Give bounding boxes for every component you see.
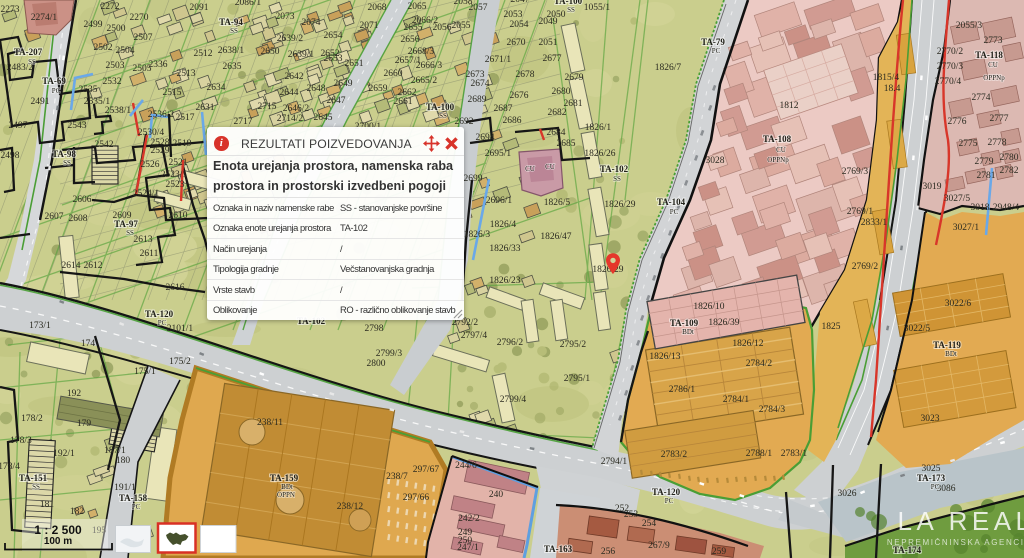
svg-text:2774: 2774: [972, 93, 991, 103]
svg-text:TA-173: TA-173: [917, 473, 946, 483]
svg-text:259: 259: [712, 547, 727, 557]
svg-text:1826/12: 1826/12: [732, 339, 763, 349]
svg-text:297/66: 297/66: [403, 493, 430, 503]
svg-text:2783/2: 2783/2: [661, 450, 688, 460]
svg-text:TA-108: TA-108: [763, 134, 792, 144]
svg-text:TA-120: TA-120: [145, 309, 174, 319]
svg-text:2778: 2778: [988, 138, 1007, 148]
svg-text:TA-97: TA-97: [114, 219, 138, 229]
svg-text:2274/1: 2274/1: [31, 13, 58, 23]
svg-text:2073: 2073: [276, 12, 295, 22]
svg-text:BDt: BDt: [281, 483, 293, 491]
svg-text:2613: 2613: [134, 235, 153, 245]
svg-text:242/2: 242/2: [458, 514, 480, 524]
svg-text:2612: 2612: [84, 261, 103, 271]
svg-text:2507: 2507: [134, 33, 153, 43]
svg-text:2047: 2047: [511, 0, 530, 5]
svg-text:3027/1: 3027/1: [953, 223, 980, 233]
svg-text:SS: SS: [63, 159, 71, 167]
svg-text:1826/13: 1826/13: [649, 352, 680, 362]
svg-text:2517: 2517: [176, 113, 195, 123]
svg-text:CU: CU: [545, 163, 555, 171]
svg-text:2687: 2687: [494, 104, 513, 114]
svg-text:2674: 2674: [471, 79, 490, 89]
svg-text:2634: 2634: [207, 83, 226, 93]
svg-text:1826/26: 1826/26: [584, 149, 615, 159]
svg-text:2677: 2677: [543, 54, 562, 64]
svg-text:254: 254: [642, 519, 657, 529]
svg-text:2684: 2684: [547, 128, 566, 138]
svg-text:SS: SS: [28, 58, 36, 66]
svg-text:267/9: 267/9: [648, 541, 670, 551]
svg-text:2770/4: 2770/4: [935, 77, 962, 87]
svg-text:175/1: 175/1: [134, 367, 156, 377]
svg-text:2666/3: 2666/3: [416, 61, 443, 71]
svg-text:2647: 2647: [327, 96, 346, 106]
svg-text:2651: 2651: [345, 59, 364, 69]
svg-text:2642: 2642: [285, 72, 304, 82]
svg-text:2679: 2679: [565, 73, 584, 83]
svg-text:3023: 3023: [921, 414, 940, 424]
svg-text:TA-120: TA-120: [652, 487, 681, 497]
svg-text:2524/1: 2524/1: [133, 189, 160, 199]
svg-text:2526: 2526: [141, 160, 160, 170]
svg-text:2797/4: 2797/4: [461, 331, 488, 341]
svg-text:OPPNp: OPPNp: [767, 156, 789, 164]
svg-text:SS: SS: [230, 27, 238, 35]
svg-text:2695/1: 2695/1: [485, 149, 512, 159]
svg-text:2685: 2685: [557, 139, 576, 149]
svg-text:175/2: 175/2: [169, 357, 191, 367]
svg-text:2833/1: 2833/1: [861, 218, 888, 228]
svg-text:2648: 2648: [307, 84, 326, 94]
svg-text:2680: 2680: [552, 87, 571, 97]
svg-text:2694: 2694: [476, 133, 495, 143]
svg-text:LA REAL: LA REAL: [897, 506, 1024, 536]
svg-text:178/4: 178/4: [0, 462, 20, 472]
svg-text:238/11: 238/11: [257, 418, 283, 428]
svg-text:1826/1: 1826/1: [585, 123, 612, 133]
svg-text:3086: 3086: [937, 484, 956, 494]
svg-text:2055/3: 2055/3: [956, 21, 983, 31]
svg-text:2504: 2504: [116, 46, 135, 56]
svg-text:2068: 2068: [368, 3, 387, 13]
svg-text:2611: 2611: [140, 249, 159, 259]
svg-text:192/1: 192/1: [53, 449, 75, 459]
svg-text:TA-104: TA-104: [657, 197, 686, 207]
svg-text:2491: 2491: [31, 97, 50, 107]
svg-text:2532: 2532: [103, 77, 122, 87]
svg-text:2777: 2777: [990, 114, 1009, 124]
svg-text:180: 180: [116, 456, 131, 466]
svg-text:2776: 2776: [948, 117, 967, 127]
svg-text:18.4: 18.4: [884, 84, 901, 94]
svg-text:2646/2: 2646/2: [283, 104, 310, 114]
svg-text:2682: 2682: [548, 108, 567, 118]
svg-text:2542: 2542: [95, 140, 114, 150]
svg-text:2775: 2775: [959, 139, 978, 149]
svg-text:2639/1: 2639/1: [288, 50, 315, 60]
svg-text:2644: 2644: [280, 88, 299, 98]
svg-text:SS: SS: [32, 483, 40, 491]
svg-text:TA-118: TA-118: [975, 50, 1003, 60]
svg-text:252: 252: [615, 504, 630, 514]
svg-text:2715: 2715: [258, 102, 277, 112]
svg-text:TA-158: TA-158: [119, 493, 148, 503]
svg-text:2521: 2521: [169, 158, 188, 168]
svg-text:178/3: 178/3: [10, 436, 32, 446]
svg-text:2799/3: 2799/3: [376, 349, 403, 359]
svg-text:SS: SS: [439, 112, 447, 120]
svg-text:2503: 2503: [106, 61, 125, 71]
svg-text:2051: 2051: [539, 38, 558, 48]
svg-text:191/1: 191/1: [114, 483, 136, 493]
svg-text:297/67: 297/67: [413, 465, 440, 475]
svg-text:2794/1: 2794/1: [601, 457, 628, 467]
svg-text:2784/1: 2784/1: [723, 395, 750, 405]
svg-text:240: 240: [489, 490, 504, 500]
svg-text:1826/10: 1826/10: [693, 302, 724, 312]
svg-text:2773: 2773: [984, 36, 1003, 46]
svg-text:2065: 2065: [408, 2, 427, 12]
svg-text:1826/3: 1826/3: [464, 230, 491, 240]
svg-text:2608: 2608: [69, 214, 88, 224]
svg-text:2054: 2054: [510, 20, 529, 30]
svg-text:100 m: 100 m: [44, 536, 72, 547]
svg-text:PC: PC: [158, 319, 167, 327]
svg-text:2678: 2678: [516, 70, 535, 80]
svg-text:1815/4: 1815/4: [873, 73, 900, 83]
svg-text:2053: 2053: [504, 10, 523, 20]
svg-text:3026: 3026: [838, 489, 857, 499]
svg-text:2638/1: 2638/1: [218, 46, 245, 56]
svg-text:181: 181: [40, 500, 55, 510]
svg-text:2536/2: 2536/2: [148, 110, 175, 120]
svg-text:TA-98: TA-98: [52, 149, 76, 159]
svg-text:2656: 2656: [401, 35, 420, 45]
svg-text:PC: PC: [52, 87, 61, 95]
svg-text:2769/3: 2769/3: [842, 167, 869, 177]
svg-text:2800: 2800: [367, 359, 386, 369]
svg-text:2696/1: 2696/1: [486, 196, 513, 206]
svg-text:2498: 2498: [1, 151, 20, 161]
svg-text:BDt: BDt: [682, 328, 694, 336]
svg-text:1826/5: 1826/5: [544, 198, 571, 208]
svg-text:2654: 2654: [324, 31, 343, 41]
svg-text:TA-163: TA-163: [544, 544, 573, 554]
svg-text:2665/2: 2665/2: [411, 76, 438, 86]
svg-text:2523: 2523: [166, 180, 185, 190]
svg-text:2795/2: 2795/2: [560, 340, 587, 350]
svg-text:238/12: 238/12: [337, 502, 364, 512]
svg-text:SS: SS: [567, 6, 575, 14]
svg-text:2538/1: 2538/1: [105, 106, 132, 116]
svg-text:OPPNp: OPPNp: [983, 74, 1005, 82]
svg-text:2535: 2535: [79, 85, 98, 95]
svg-text:244/6: 244/6: [455, 461, 477, 471]
svg-text:2770/3: 2770/3: [937, 62, 964, 72]
svg-text:3022/5: 3022/5: [904, 324, 931, 334]
svg-text:2796/2: 2796/2: [497, 338, 524, 348]
svg-text:2692: 2692: [455, 117, 474, 127]
svg-text:1826/33: 1826/33: [489, 244, 520, 254]
svg-text:2529: 2529: [151, 146, 170, 156]
svg-text:2783/1: 2783/1: [781, 449, 808, 459]
svg-text:192: 192: [67, 389, 82, 399]
svg-text:247/1: 247/1: [457, 543, 479, 553]
svg-text:2676: 2676: [510, 91, 529, 101]
svg-text:CU: CU: [525, 165, 535, 173]
svg-text:2671/1: 2671/1: [485, 55, 512, 65]
svg-text:BDt: BDt: [945, 350, 957, 358]
svg-text:2513: 2513: [177, 69, 196, 79]
svg-text:2086/1: 2086/1: [235, 0, 262, 8]
svg-text:TA-102: TA-102: [600, 164, 629, 174]
svg-text:2055: 2055: [452, 21, 471, 31]
svg-text:2689: 2689: [468, 95, 487, 105]
svg-text:1826/23: 1826/23: [489, 276, 520, 286]
svg-text:TA-79: TA-79: [701, 37, 725, 47]
svg-text:TA-100: TA-100: [426, 102, 455, 112]
svg-text:2655: 2655: [404, 23, 423, 33]
svg-text:2670: 2670: [507, 38, 526, 48]
svg-text:SS: SS: [126, 229, 134, 237]
svg-text:TA-151: TA-151: [19, 473, 48, 483]
svg-text:1812: 1812: [780, 101, 799, 111]
svg-text:PC: PC: [665, 497, 674, 505]
svg-text:SS: SS: [613, 175, 621, 183]
svg-text:OPPN: OPPN: [277, 491, 295, 499]
svg-text:187/1: 187/1: [104, 446, 126, 456]
svg-text:2607: 2607: [45, 212, 64, 222]
svg-text:2057: 2057: [469, 3, 488, 13]
svg-text:2101/1: 2101/1: [167, 324, 194, 334]
svg-text:2661: 2661: [394, 97, 413, 107]
svg-text:2717: 2717: [234, 117, 253, 127]
svg-text:2645: 2645: [314, 113, 333, 123]
svg-text:2631: 2631: [196, 103, 215, 113]
svg-text:2497: 2497: [9, 121, 28, 131]
svg-text:2788/1: 2788/1: [746, 449, 773, 459]
svg-text:2523/1: 2523/1: [161, 170, 188, 180]
svg-text:2500: 2500: [107, 24, 126, 34]
svg-text:TA-159: TA-159: [270, 473, 299, 483]
svg-text:178/2: 178/2: [21, 414, 43, 424]
svg-text:2649: 2649: [334, 79, 353, 89]
svg-text:174: 174: [81, 339, 96, 349]
svg-text:2273: 2273: [1, 5, 20, 15]
svg-text:2769/1: 2769/1: [847, 207, 874, 217]
svg-text:2543: 2543: [68, 121, 87, 131]
svg-text:2652: 2652: [321, 49, 340, 59]
svg-text:179: 179: [77, 419, 92, 429]
svg-text:2779: 2779: [975, 157, 994, 167]
svg-text:2784/3: 2784/3: [759, 405, 786, 415]
svg-text:3028: 3028: [706, 156, 725, 166]
svg-text:2272: 2272: [101, 2, 120, 12]
svg-text:1826/47: 1826/47: [540, 232, 571, 242]
svg-text:2610: 2610: [169, 211, 188, 221]
svg-text:2786/1: 2786/1: [669, 385, 696, 395]
svg-text:TA-109: TA-109: [670, 318, 699, 328]
svg-text:3027/5: 3027/5: [944, 194, 971, 204]
svg-text:PC: PC: [670, 208, 679, 216]
svg-text:2798: 2798: [365, 324, 384, 334]
svg-text:2502: 2502: [94, 43, 113, 53]
svg-text:2049: 2049: [539, 17, 558, 27]
svg-text:2614: 2614: [62, 261, 81, 271]
svg-text:TA-69: TA-69: [42, 76, 66, 86]
svg-text:2686: 2686: [503, 116, 522, 126]
svg-text:238/7: 238/7: [386, 472, 408, 482]
svg-text:1055/1: 1055/1: [584, 3, 611, 13]
svg-text:PC: PC: [712, 47, 721, 55]
svg-text:173/1: 173/1: [29, 321, 51, 331]
svg-text:2799/4: 2799/4: [500, 395, 527, 405]
svg-text:2074: 2074: [302, 18, 321, 28]
svg-text:1 : 2 500: 1 : 2 500: [34, 523, 82, 537]
svg-text:256: 256: [601, 547, 616, 557]
svg-text:1826/39: 1826/39: [708, 318, 739, 328]
svg-text:2515: 2515: [163, 88, 182, 98]
svg-text:182: 182: [70, 507, 85, 517]
svg-text:2650: 2650: [261, 47, 280, 57]
svg-text:2530/4: 2530/4: [138, 128, 165, 138]
svg-text:1826/29: 1826/29: [604, 200, 635, 210]
svg-text:TA-94: TA-94: [219, 17, 243, 27]
svg-text:NEPREMIČNINSKA AGENCIJA: NEPREMIČNINSKA AGENCIJA: [887, 538, 1024, 547]
svg-text:2948/4: 2948/4: [993, 203, 1020, 213]
svg-text:3018: 3018: [971, 203, 990, 213]
svg-text:3019: 3019: [923, 182, 942, 192]
svg-text:1826/4: 1826/4: [490, 220, 517, 230]
svg-text:TA-119: TA-119: [933, 340, 961, 350]
svg-text:PC: PC: [132, 503, 141, 511]
svg-text:3022/6: 3022/6: [945, 299, 972, 309]
svg-text:2782: 2782: [1000, 166, 1019, 176]
svg-text:2795/1: 2795/1: [564, 374, 591, 384]
svg-text:2780: 2780: [1000, 153, 1019, 163]
svg-text:1825: 1825: [822, 322, 841, 332]
svg-text:2091: 2091: [190, 3, 209, 13]
svg-text:2336: 2336: [149, 60, 168, 70]
svg-text:2784/2: 2784/2: [746, 359, 773, 369]
svg-text:2071: 2071: [360, 21, 379, 31]
svg-text:2606: 2606: [73, 195, 92, 205]
svg-text:TA-207: TA-207: [14, 47, 43, 57]
svg-text:2056: 2056: [433, 23, 452, 33]
svg-text:2769/2: 2769/2: [852, 262, 879, 272]
svg-text:2781: 2781: [977, 171, 996, 181]
svg-text:2512: 2512: [194, 49, 213, 59]
svg-text:CU: CU: [988, 61, 998, 69]
svg-text:2639/2: 2639/2: [277, 34, 304, 44]
svg-text:2270: 2270: [130, 13, 149, 23]
svg-text:2714/2: 2714/2: [277, 114, 304, 124]
svg-text:2616: 2616: [166, 283, 185, 293]
svg-text:2635: 2635: [223, 62, 242, 72]
svg-text:PC: PC: [931, 483, 940, 491]
svg-text:2770/2: 2770/2: [937, 47, 964, 57]
svg-text:2660: 2660: [384, 69, 403, 79]
svg-text:2699: 2699: [464, 174, 483, 184]
svg-text:2499: 2499: [84, 20, 103, 30]
svg-text:CU: CU: [776, 146, 786, 154]
svg-text:2519: 2519: [173, 139, 192, 149]
svg-text:1826/7: 1826/7: [655, 63, 682, 73]
svg-text:2659: 2659: [369, 84, 388, 94]
